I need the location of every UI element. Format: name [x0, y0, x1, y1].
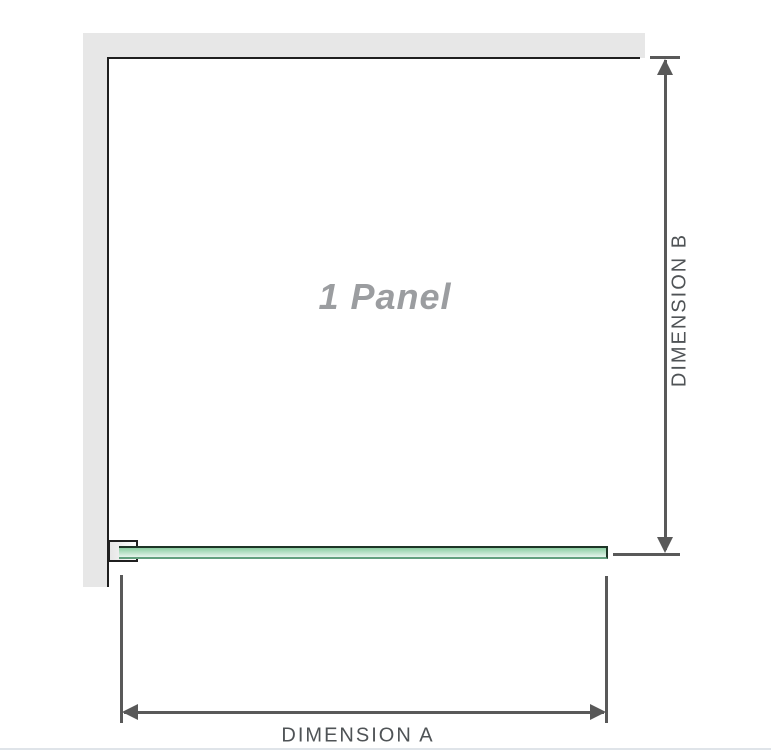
- dimension-a-extension-right: [605, 576, 608, 723]
- dimension-a-label: DIMENSION A: [281, 725, 434, 748]
- arrow-up-icon: [657, 59, 673, 75]
- diagram-canvas: 1 Panel DIMENSION B DIMENSION A: [0, 0, 771, 755]
- arrow-right-icon: [590, 704, 606, 720]
- panel-count-label: 1 Panel: [318, 276, 451, 318]
- top-wall-inner-edge: [109, 57, 640, 59]
- top-wall: [83, 33, 645, 58]
- dimension-b-tick-bottom: [613, 553, 680, 556]
- arrow-left-icon: [122, 704, 138, 720]
- left-wall: [83, 33, 109, 587]
- dimension-b-label: DIMENSION B: [669, 233, 692, 387]
- dimension-b-line: [664, 60, 667, 550]
- left-wall-inner-edge: [107, 57, 109, 587]
- arrow-down-icon: [657, 537, 673, 553]
- bottom-divider: [0, 748, 771, 750]
- glass-panel: [119, 546, 608, 559]
- dimension-a-line: [124, 711, 604, 714]
- dimension-a-extension-left: [120, 575, 123, 723]
